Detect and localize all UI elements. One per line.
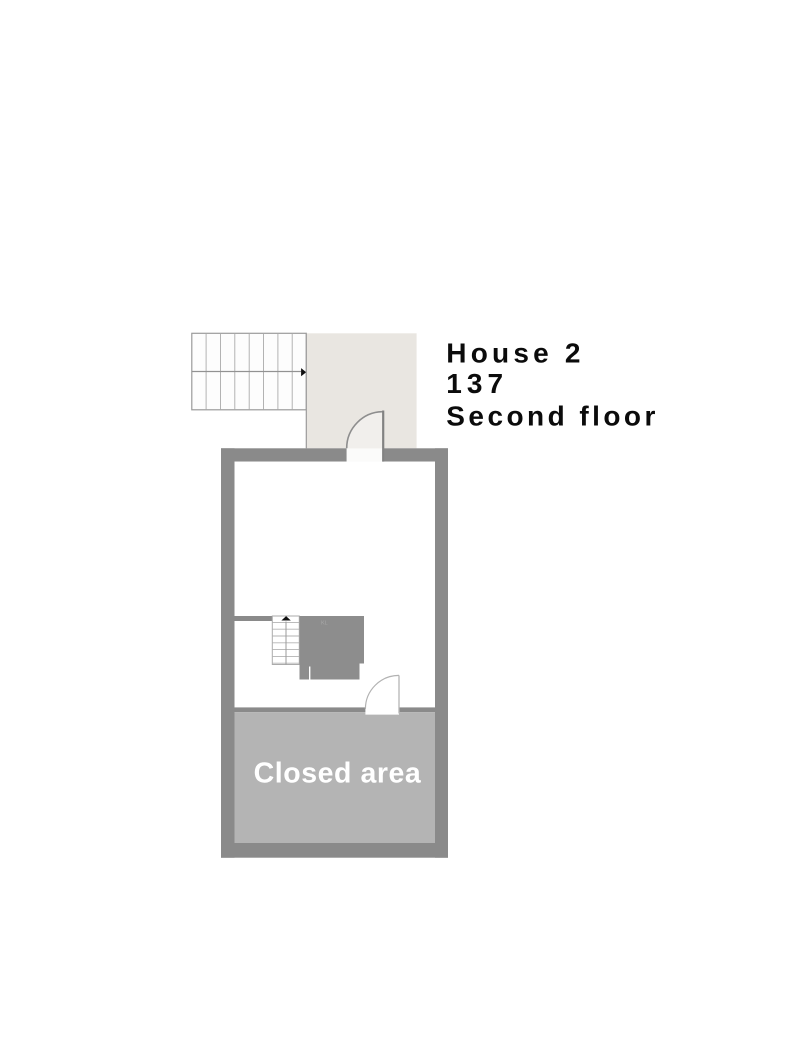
svg-text:House 2: House 2 [446, 337, 584, 368]
svg-text:Closed area: Closed area [254, 758, 422, 790]
svg-text:KL: KL [321, 621, 328, 627]
svg-text:Second floor: Second floor [446, 400, 659, 431]
svg-text:137: 137 [446, 368, 508, 399]
